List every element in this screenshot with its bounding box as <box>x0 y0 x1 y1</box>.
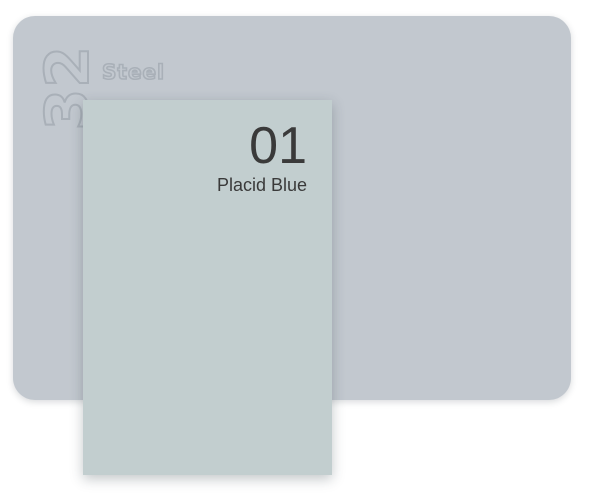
swatch-stage: 32 Steel 01 Placid Blue <box>0 0 600 495</box>
swatch-number: 01 <box>83 118 307 174</box>
swatch-name: Placid Blue <box>83 175 307 196</box>
base-card-name: Steel <box>102 60 165 84</box>
swatch-card-placid-blue[interactable]: 01 Placid Blue <box>83 100 332 475</box>
